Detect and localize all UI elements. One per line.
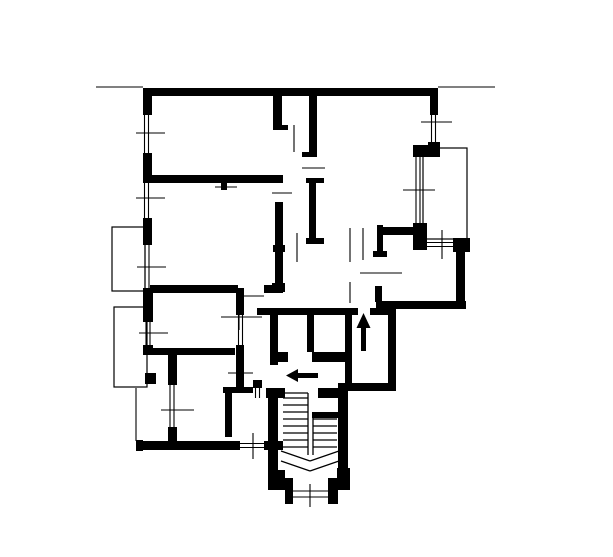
wall-segment <box>373 251 387 257</box>
wall-segment <box>168 427 177 441</box>
wall-segment <box>338 398 348 470</box>
entry-direction-arrow-shaft <box>296 373 318 378</box>
wall-segment <box>302 152 309 157</box>
wall-segment <box>143 153 152 183</box>
wall-segment <box>143 88 152 115</box>
wall-segment <box>306 178 324 183</box>
wall-segment <box>312 352 345 362</box>
wall-segment <box>143 288 153 322</box>
wall-segment <box>268 390 278 472</box>
wall-segment <box>143 348 235 355</box>
wall-segment <box>270 315 278 352</box>
structural-column <box>145 373 156 384</box>
wall-segment <box>268 470 285 490</box>
wall-segment <box>430 88 438 115</box>
wall-segment <box>143 88 438 96</box>
wall-segment <box>275 252 283 283</box>
wall-segment <box>168 355 177 385</box>
wall-segment <box>143 218 152 245</box>
wall-segment <box>275 202 283 245</box>
wall-segment <box>257 308 358 315</box>
wall-segment <box>136 441 240 450</box>
wall-segment <box>278 352 288 362</box>
wall-segment <box>225 387 232 437</box>
floor-plan-canvas <box>0 0 613 557</box>
wall-segment <box>273 245 285 252</box>
wall-segment <box>285 496 293 504</box>
wall-segment <box>377 227 420 235</box>
wall-segment <box>312 412 338 418</box>
wall-segment <box>309 96 317 157</box>
wall-segment <box>264 285 283 293</box>
wall-segment <box>273 96 282 130</box>
wall-segment <box>328 478 338 498</box>
wall-segment <box>456 250 465 305</box>
wall-segment <box>337 468 350 490</box>
wall-segment <box>338 383 396 391</box>
wall-segment <box>285 478 293 498</box>
paper-background <box>0 0 613 557</box>
wall-segment <box>150 285 238 293</box>
wall-segment <box>345 315 352 383</box>
wall-segment <box>270 352 278 365</box>
wall-segment <box>282 125 288 130</box>
wall-segment <box>376 301 466 309</box>
wall-segment <box>236 345 244 393</box>
wall-segment <box>428 142 440 155</box>
up-direction-arrow-shaft <box>361 327 366 351</box>
wall-segment <box>152 175 283 183</box>
wall-segment <box>266 388 285 398</box>
wall-segment <box>370 308 396 315</box>
wall-segment <box>388 313 396 385</box>
wall-segment <box>375 286 382 302</box>
wall-segment <box>453 238 470 252</box>
wall-segment <box>306 238 324 244</box>
wall-segment <box>307 315 314 352</box>
floor-plan-page <box>0 0 613 557</box>
wall-segment <box>253 380 262 388</box>
wall-segment <box>309 178 316 243</box>
